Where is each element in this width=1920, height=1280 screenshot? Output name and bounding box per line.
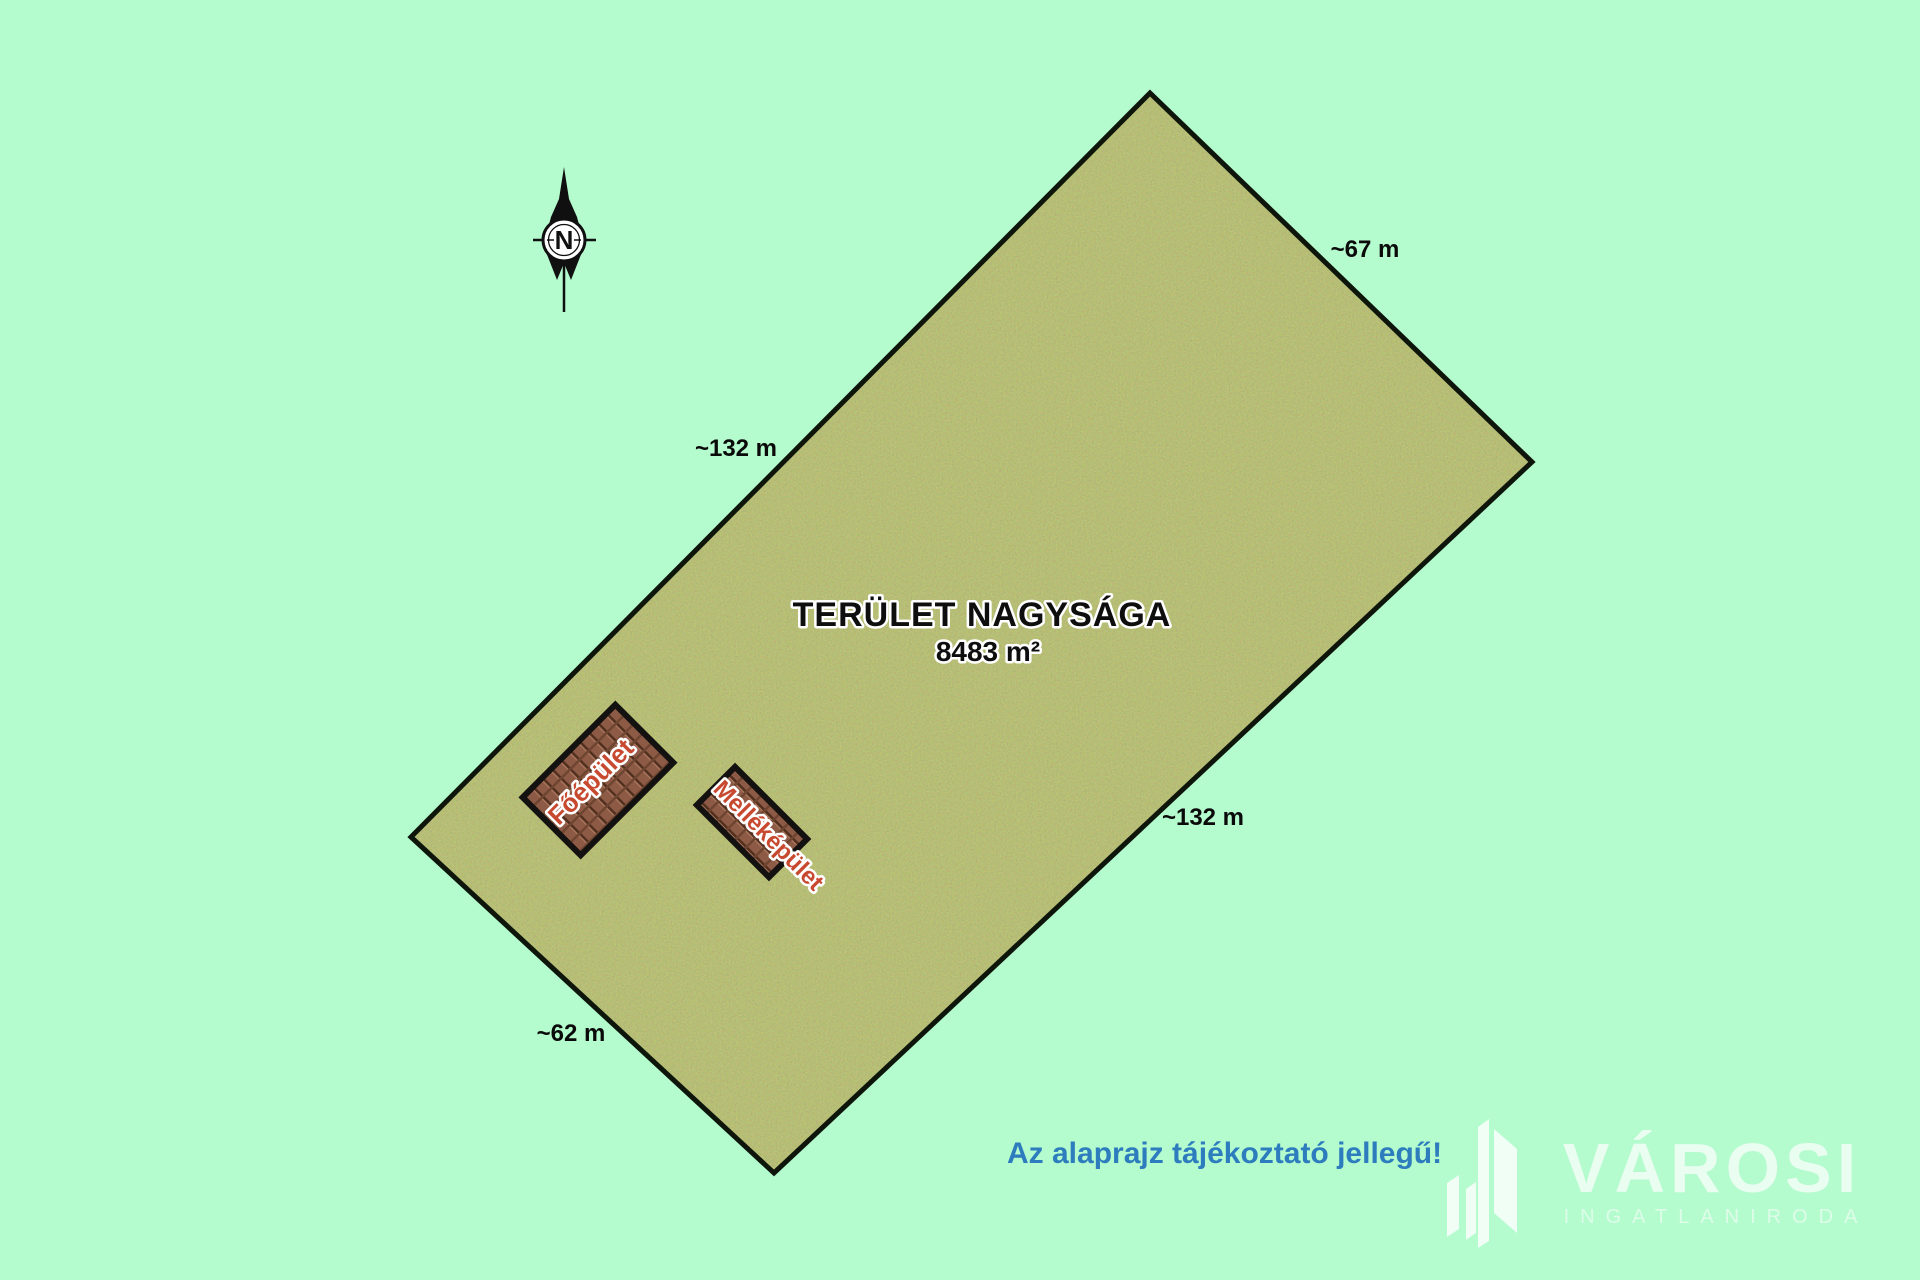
dimension-label-southwest: ~62 m	[537, 1020, 606, 1047]
logo-brand-text: VÁROSI	[1563, 1129, 1861, 1207]
north-arrow-icon: N	[533, 167, 596, 312]
area-title: TERÜLET NAGYSÁGA	[793, 596, 1172, 634]
varosi-logo: VÁROSI INGATLANIRODA	[1447, 1119, 1868, 1248]
logo-subtitle-text: INGATLANIRODA	[1564, 1206, 1869, 1228]
site-plan: Főépület Melléképület ~67 m ~132 m ~132 …	[0, 0, 1920, 1280]
site-plan-graphic: Főépület Melléképület ~67 m ~132 m ~132 …	[0, 0, 1920, 1280]
dimension-label-northwest: ~132 m	[695, 435, 777, 462]
area-value: 8483 m²	[936, 636, 1040, 667]
disclaimer-text: Az alaprajz tájékoztató jellegű!	[1007, 1137, 1442, 1170]
compass-label: N	[555, 225, 574, 255]
logo-building-icon	[1447, 1119, 1517, 1248]
dimension-label-northeast: ~67 m	[1331, 236, 1400, 263]
dimension-label-southeast: ~132 m	[1162, 804, 1244, 831]
